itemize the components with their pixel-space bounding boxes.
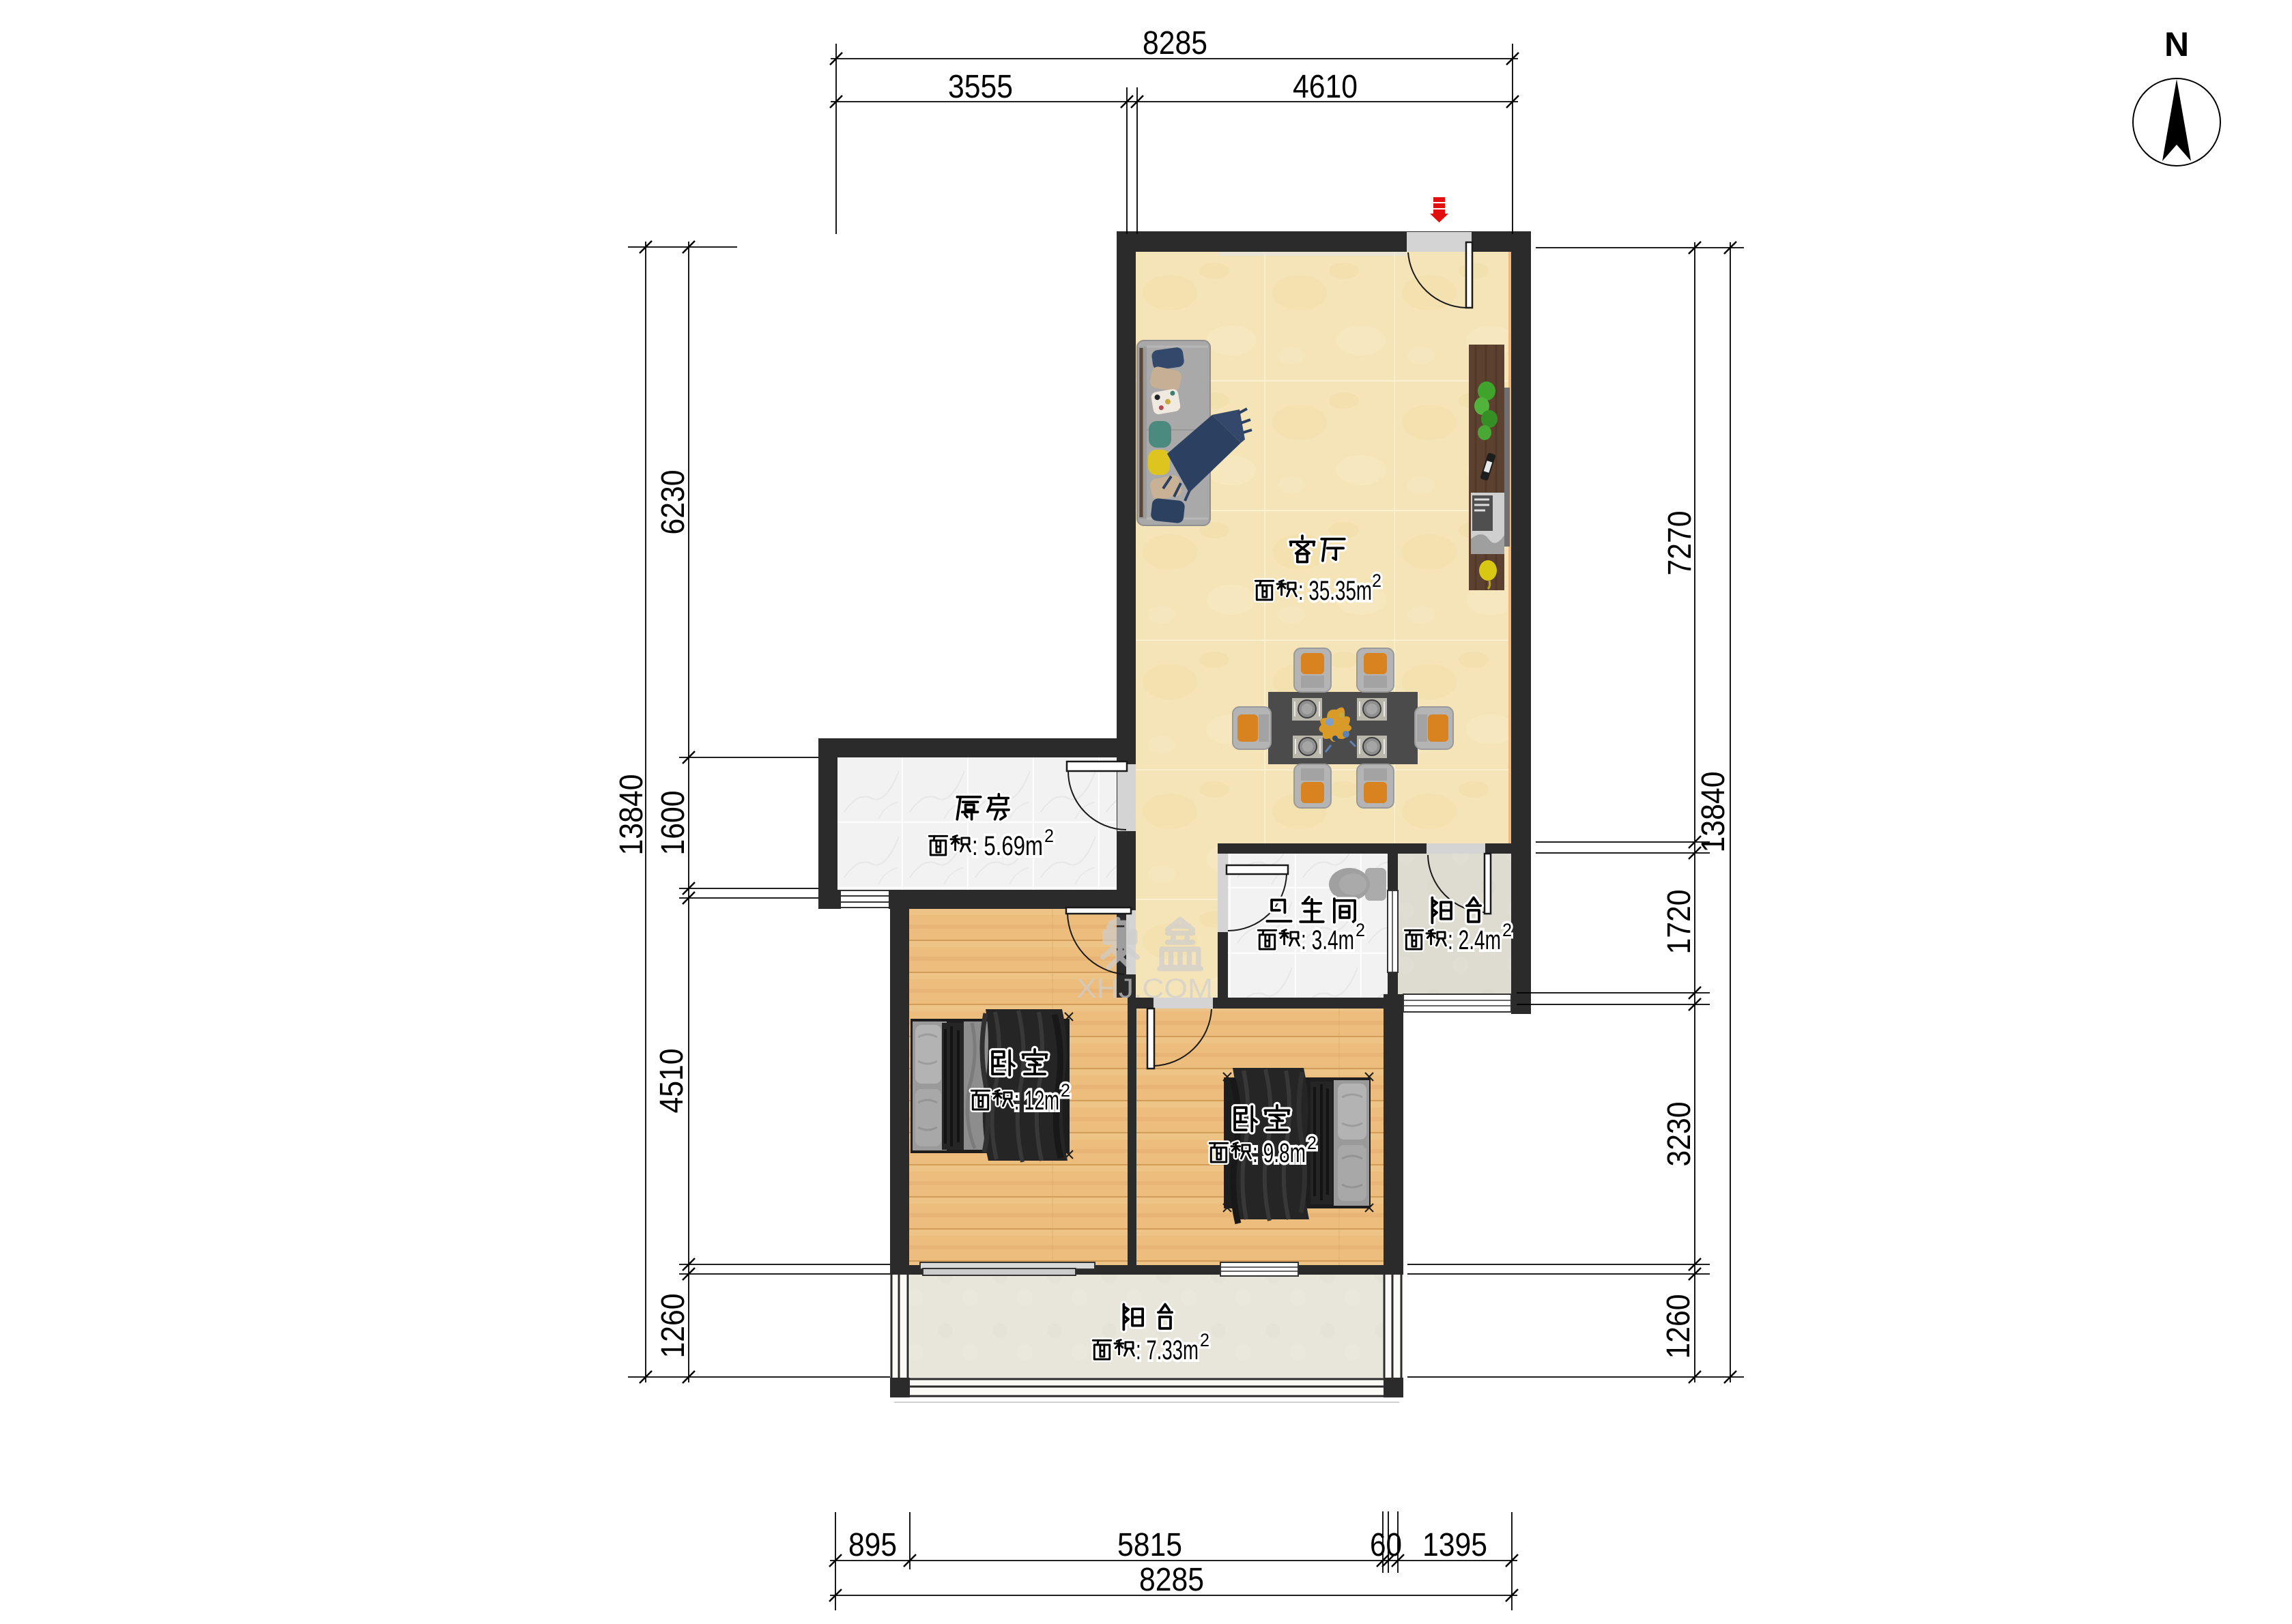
svg-text:2: 2	[1356, 920, 1365, 940]
svg-text:4510: 4510	[654, 1049, 690, 1114]
svg-text:8285: 8285	[1139, 1562, 1204, 1598]
svg-text:3230: 3230	[1661, 1102, 1697, 1167]
svg-text:1720: 1720	[1661, 890, 1697, 955]
svg-text:2: 2	[1307, 1133, 1317, 1153]
svg-text:XHJ.COM: XHJ.COM	[1076, 974, 1213, 1004]
svg-text:: 2.4m: : 2.4m	[1448, 925, 1501, 955]
svg-text:2: 2	[1372, 570, 1381, 591]
svg-text:N: N	[2164, 25, 2189, 63]
svg-text:2: 2	[1502, 920, 1512, 940]
svg-text:6230: 6230	[655, 470, 691, 535]
svg-text:: 35.35m: : 35.35m	[1298, 576, 1372, 606]
svg-text:7270: 7270	[1662, 511, 1698, 576]
svg-text:: 5.69m: : 5.69m	[972, 831, 1043, 861]
svg-text:2: 2	[1044, 826, 1054, 846]
svg-text:2: 2	[1061, 1080, 1070, 1101]
svg-text:2: 2	[1200, 1330, 1209, 1350]
svg-text:1260: 1260	[1661, 1294, 1697, 1359]
svg-text:1260: 1260	[655, 1294, 691, 1359]
svg-text:895: 895	[848, 1527, 897, 1563]
svg-text:: 9.8m: : 9.8m	[1252, 1138, 1306, 1168]
svg-text:1395: 1395	[1422, 1527, 1487, 1563]
svg-text:4610: 4610	[1293, 69, 1358, 105]
svg-text:1600: 1600	[655, 791, 691, 856]
svg-text:60: 60	[1370, 1527, 1402, 1563]
svg-text:3555: 3555	[948, 69, 1013, 105]
svg-text:: 3.4m: : 3.4m	[1301, 925, 1354, 955]
svg-text:: 12m: : 12m	[1014, 1086, 1059, 1116]
svg-text:13840: 13840	[1695, 772, 1732, 853]
svg-text:5815: 5815	[1117, 1527, 1182, 1563]
svg-text:8285: 8285	[1143, 25, 1207, 61]
svg-text:: 7.33m: : 7.33m	[1136, 1335, 1199, 1365]
svg-text:13840: 13840	[614, 774, 650, 856]
